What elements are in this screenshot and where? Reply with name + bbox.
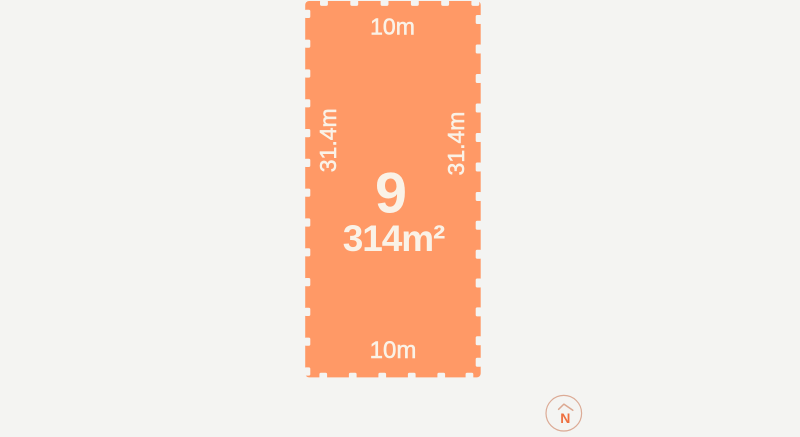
svg-text:N: N: [560, 410, 570, 426]
svg-text:314m²: 314m²: [343, 218, 445, 259]
svg-text:10m: 10m: [370, 14, 415, 40]
svg-text:10m: 10m: [370, 337, 417, 364]
svg-text:9: 9: [375, 162, 407, 226]
svg-text:31.4m: 31.4m: [315, 108, 341, 172]
svg-text:31.4m: 31.4m: [443, 112, 469, 176]
